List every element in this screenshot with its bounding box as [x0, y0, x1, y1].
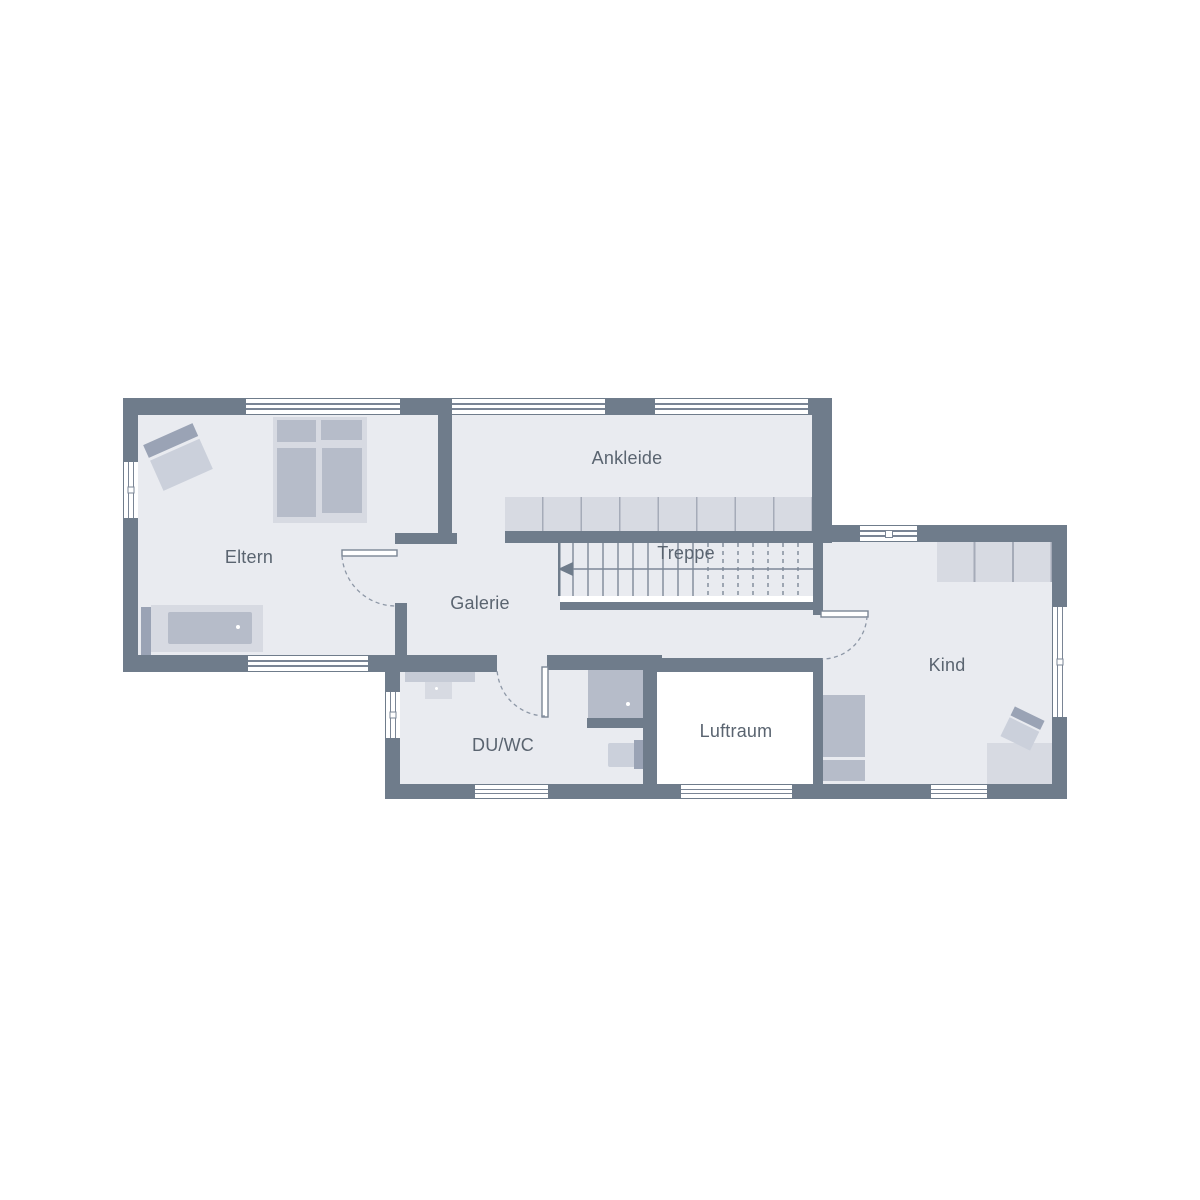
door-arc-kind: [822, 616, 867, 659]
door-symbols: [0, 0, 1200, 1200]
floor-plan: Eltern Ankleide Treppe Galerie DU/WC Luf…: [0, 0, 1200, 1200]
room-label-kind: Kind: [929, 656, 966, 674]
room-label-galerie: Galerie: [450, 594, 509, 612]
door-leaf-bath: [542, 667, 548, 717]
room-label-treppe: Treppe: [657, 544, 715, 562]
room-label-luftraum: Luftraum: [700, 722, 773, 740]
window-parents-left-latch: [128, 487, 135, 494]
room-label-ankleide: Ankleide: [592, 449, 663, 467]
door-leaf-kind: [821, 611, 868, 617]
window-kind-top-latch: [885, 530, 893, 538]
room-label-eltern: Eltern: [225, 548, 273, 566]
room-label-duwc: DU/WC: [472, 736, 534, 754]
window-kind-right-latch: [1057, 659, 1064, 666]
door-arc-parents: [342, 556, 396, 606]
window-bath-left-latch: [390, 712, 397, 719]
door-arc-bath: [497, 668, 545, 716]
door-leaf-parents: [342, 550, 397, 556]
